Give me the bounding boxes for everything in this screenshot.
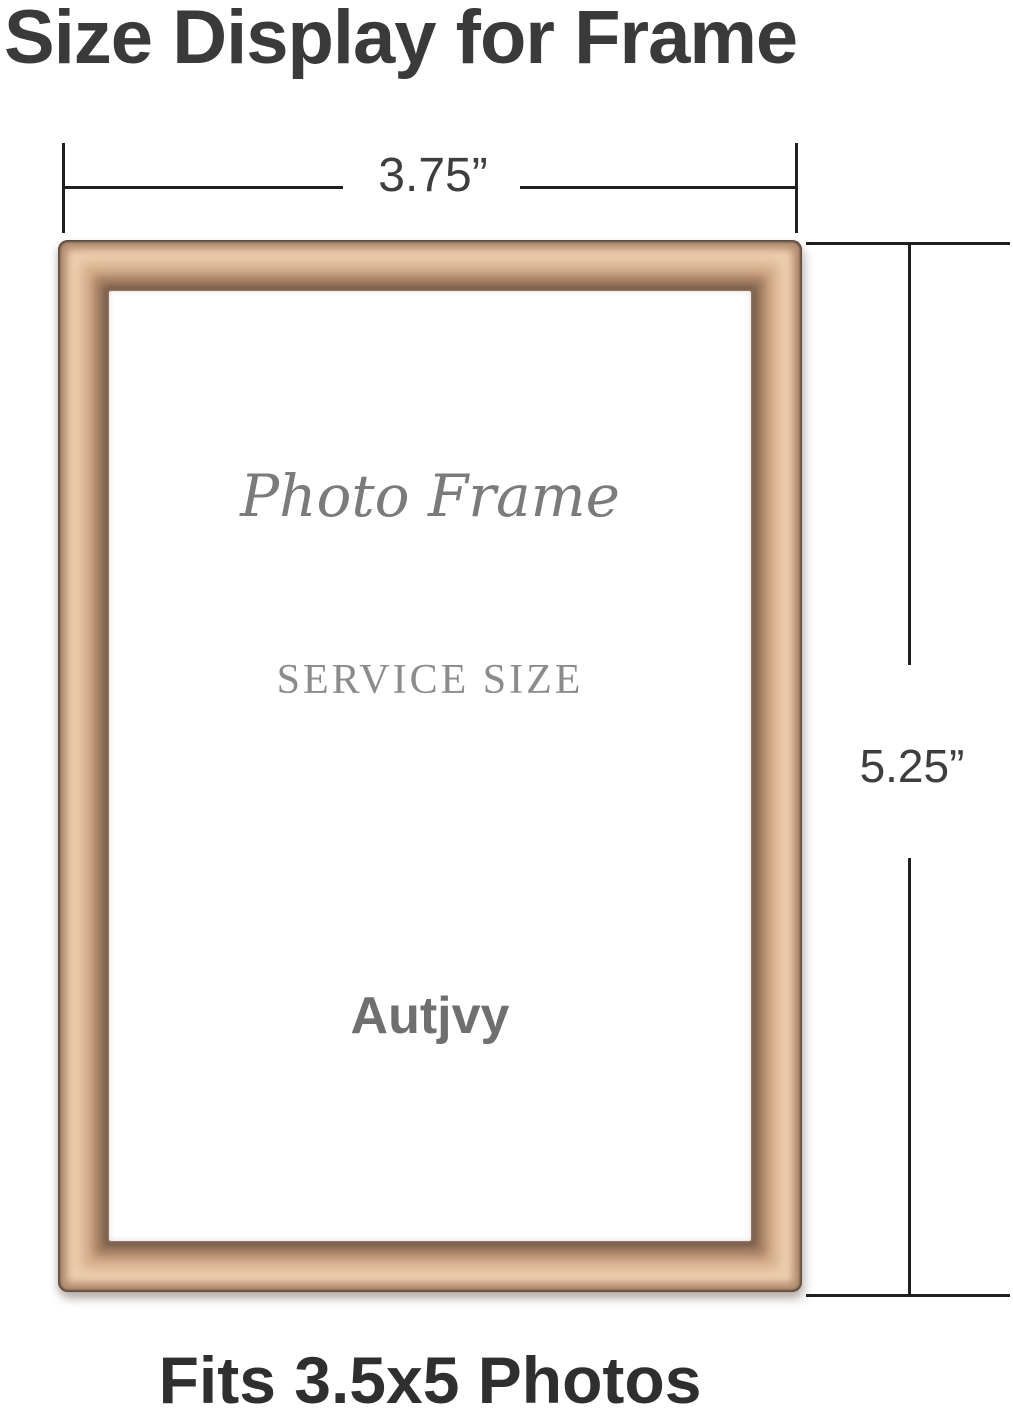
page-title: Size Display for Frame <box>4 0 797 81</box>
frame-brand-text: Autjvy <box>58 985 802 1047</box>
width-dimension-label: 3.75” <box>338 152 528 200</box>
height-dim-line-lower <box>908 858 911 1295</box>
width-dim-line-right <box>520 186 798 189</box>
product-size-diagram: { "title": "Size Display for Frame", "di… <box>0 0 1013 1417</box>
footer-caption: Fits 3.5x5 Photos <box>58 1343 802 1419</box>
height-dim-line-upper <box>908 245 911 665</box>
frame-service-size-text: SERVICE SIZE <box>58 655 802 705</box>
frame-mat-area <box>109 291 751 1241</box>
frame-script-text: Photo Frame <box>58 462 802 532</box>
height-dimension-label: 5.25” <box>820 743 1004 789</box>
width-dim-line-left <box>63 186 343 189</box>
photo-frame-graphic: Photo Frame SERVICE SIZE Autjvy <box>58 240 802 1292</box>
